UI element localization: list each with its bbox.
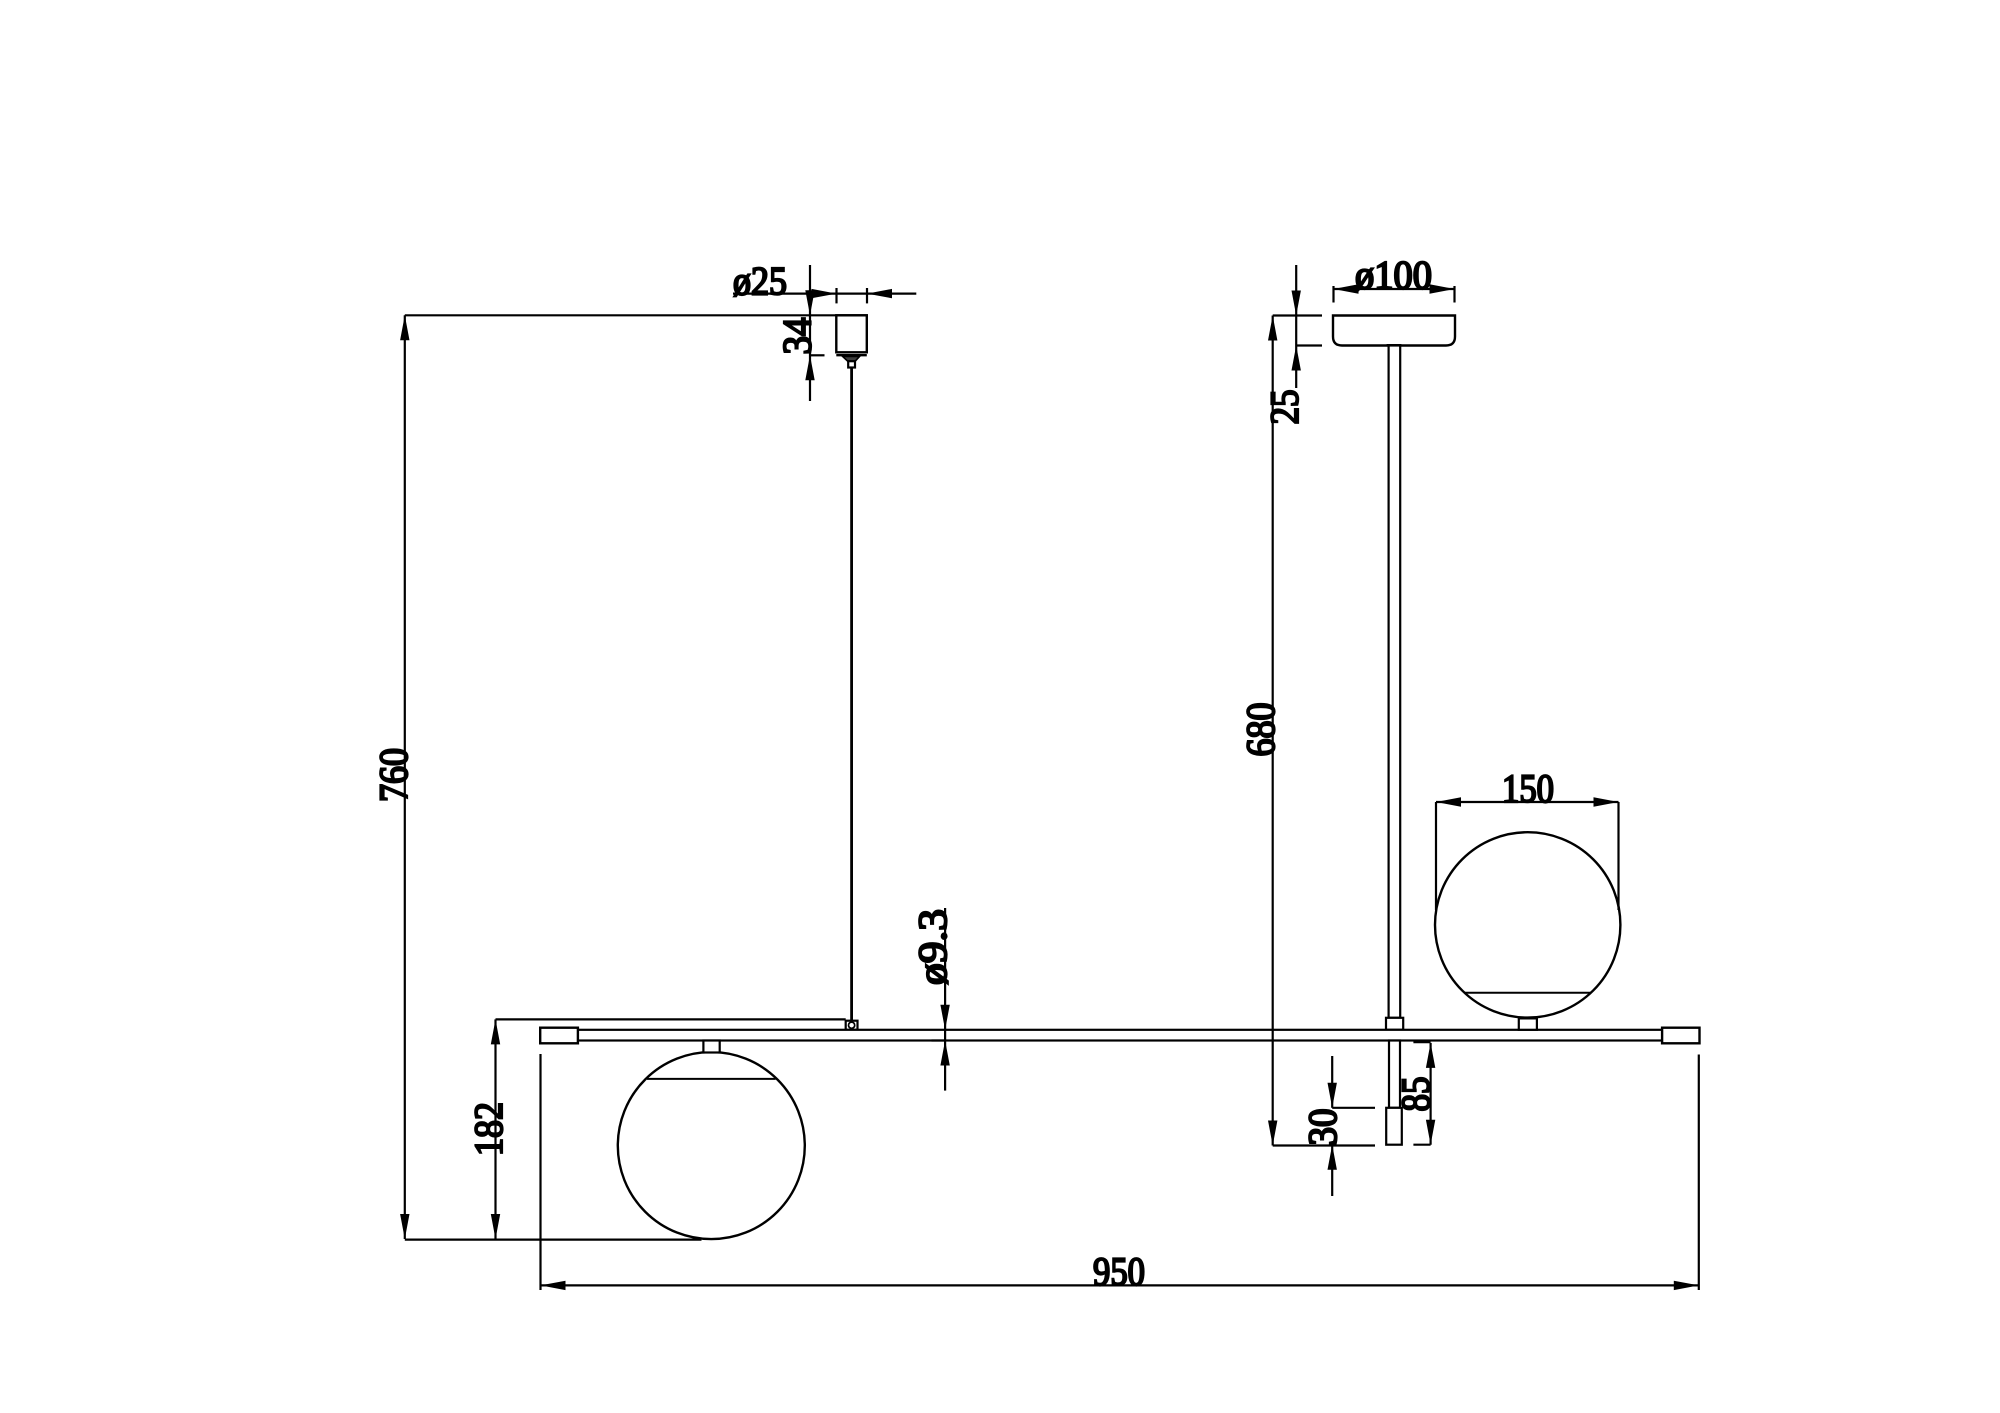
svg-text:ø100: ø100 <box>1355 253 1432 298</box>
svg-text:ø25: ø25 <box>733 259 787 304</box>
svg-text:182: 182 <box>466 1102 511 1156</box>
svg-text:680: 680 <box>1238 703 1283 757</box>
svg-text:950: 950 <box>1093 1249 1145 1294</box>
svg-text:ø9.3: ø9.3 <box>910 909 955 985</box>
svg-text:30: 30 <box>1300 1109 1345 1146</box>
svg-text:85: 85 <box>1393 1077 1438 1112</box>
svg-text:150: 150 <box>1502 766 1554 811</box>
svg-text:760: 760 <box>371 748 416 802</box>
svg-text:34: 34 <box>775 318 820 355</box>
svg-text:25: 25 <box>1262 390 1307 425</box>
